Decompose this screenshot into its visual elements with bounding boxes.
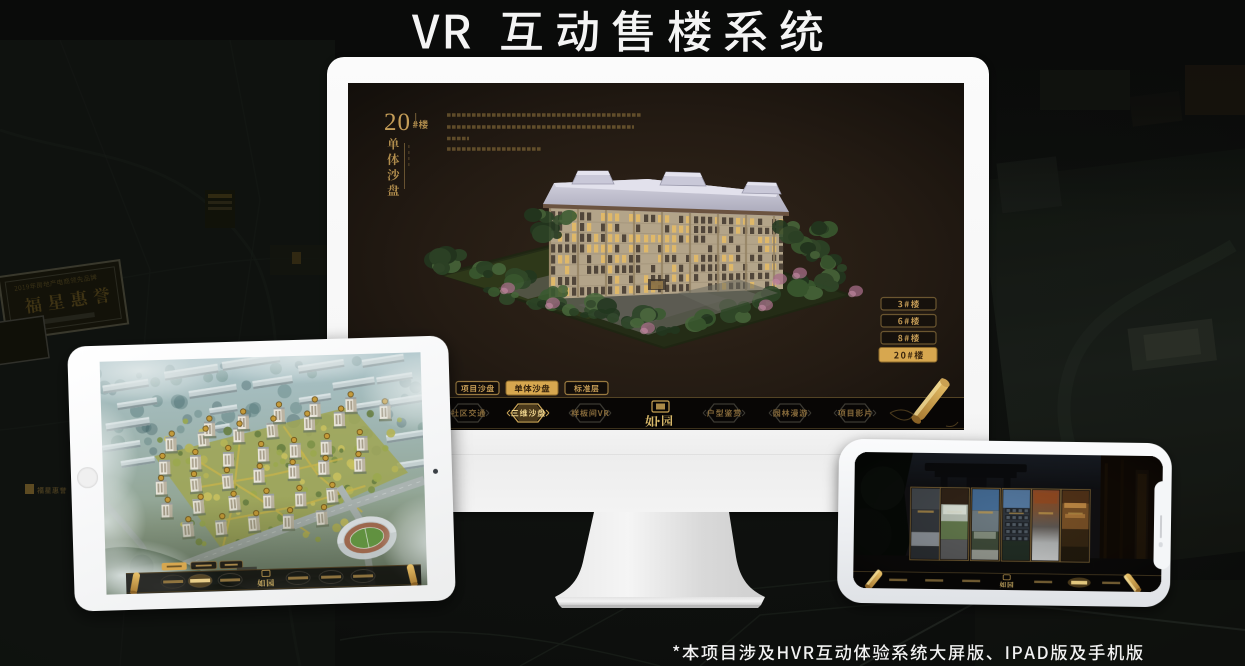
svg-text:20: 20	[384, 109, 411, 136]
